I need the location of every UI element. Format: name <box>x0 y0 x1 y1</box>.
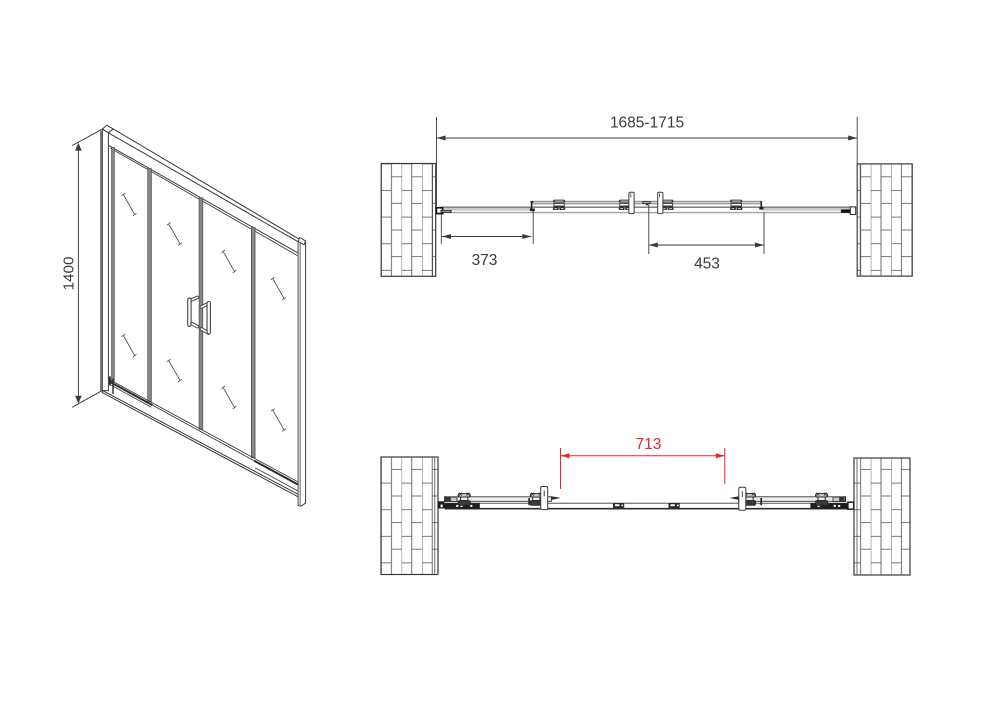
svg-text:373: 373 <box>472 252 498 269</box>
svg-text:1400: 1400 <box>60 257 77 291</box>
svg-text:1685-1715: 1685-1715 <box>610 115 684 132</box>
svg-text:453: 453 <box>694 256 720 273</box>
svg-text:713: 713 <box>636 436 662 453</box>
